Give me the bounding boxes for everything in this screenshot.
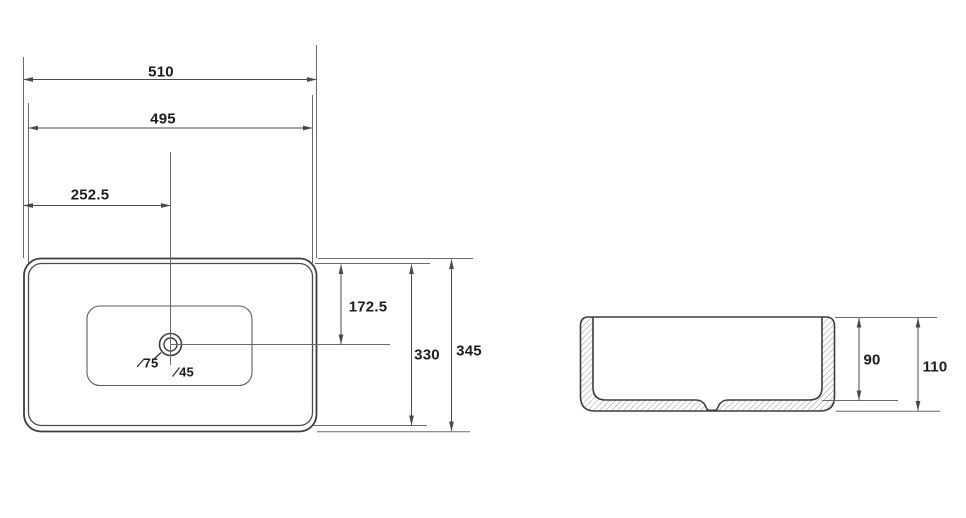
dim-label-overall-depth: 345 <box>456 344 482 359</box>
side-view-cross-section <box>581 317 835 411</box>
dim-label-drain-center-from-top: 172.5 <box>349 300 388 315</box>
dim-label-inner-depth: 330 <box>414 348 440 363</box>
dim-label-overall-height: 110 <box>923 360 948 375</box>
dim-label-drain-outer-diameter: 75 <box>144 357 159 370</box>
basin-well-outline <box>87 306 252 386</box>
dim-label-inner-height: 90 <box>863 353 880 368</box>
dim-label-drain-center-from-left: 252.5 <box>71 188 110 203</box>
dim-label-inner-width: 495 <box>150 112 176 127</box>
section-hatched-wall <box>581 317 835 411</box>
top-view-extension-lines <box>24 45 474 432</box>
technical-drawing-sheet: 510 495 252.5 172.5 330 345 75 45 90 110 <box>0 0 966 518</box>
dim-label-drain-inner-diameter: 45 <box>179 365 194 378</box>
drawing-linework <box>0 0 966 518</box>
dim-label-overall-width: 510 <box>148 65 174 80</box>
